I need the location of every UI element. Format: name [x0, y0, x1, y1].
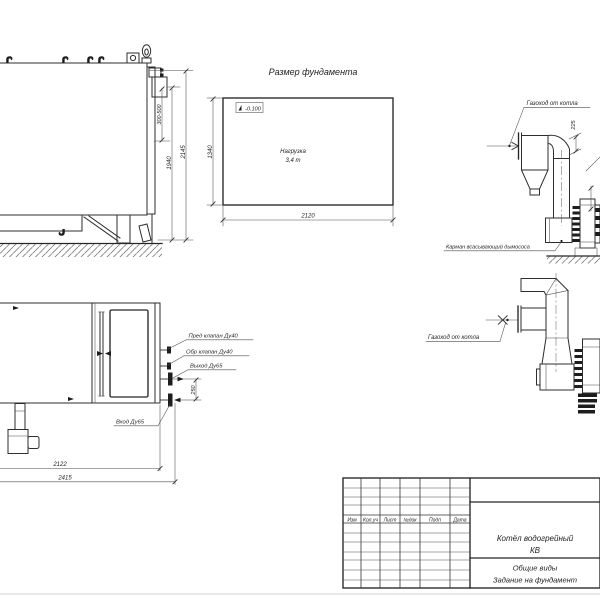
lifting-hook-icon [98, 56, 104, 63]
view-name-line1: Общие виды [513, 564, 558, 573]
cad-drawing-canvas: 300-500 1940 2145 Размер фундамента -0.1… [0, 0, 600, 600]
safety-valve-label: Пред клапан Ду40 [189, 334, 239, 340]
dim-foundation-width: 2120 [300, 214, 315, 220]
elevation-value: -0.100 [245, 106, 262, 112]
inlet-label: Вход Ду65 [116, 420, 145, 426]
dim-length-total: 2415 [57, 475, 72, 481]
suction-pocket-label: Карман всасывающий дымососа [446, 244, 530, 251]
access-door [110, 310, 148, 397]
boiler-plan-body [0, 303, 160, 403]
dim-nozzle-offset: 250 [191, 384, 197, 395]
dim-stack-range: 300-500 [157, 103, 163, 124]
dim-height-total: 2145 [181, 145, 187, 160]
col-izm: Изм [347, 518, 357, 524]
cyclone-body [522, 136, 549, 171]
check-valve-label: Обр клапан Ду40 [186, 350, 233, 356]
title-block: Изм Кол.уч Лист №док Подп Дата Котёл вод… [343, 478, 600, 588]
col-list: Лист [383, 518, 397, 524]
outlet-flange [168, 373, 173, 386]
col-koluch: Кол.уч [363, 518, 378, 524]
inlet-flange [168, 394, 173, 407]
foundation-plan: Размер фундамента -0.100 Нагрузка 3,4 т … [207, 67, 395, 226]
foundation-title: Размер фундамента [269, 67, 358, 77]
doc-name-line1: Котёл водогрейный [497, 534, 574, 543]
foundation-outline [223, 98, 393, 205]
col-data: Дата [452, 518, 466, 524]
col-ndok: №док [403, 518, 417, 524]
lifting-hook-icon [6, 56, 12, 63]
boiler-body [0, 63, 147, 215]
lifting-hook-icon [87, 56, 93, 63]
smoke-exhauster-fan-side [575, 339, 600, 414]
col-podp: Подп [429, 518, 441, 524]
load-label: Нагрузка [280, 149, 306, 155]
outlet-label: Выход Ду65 [190, 364, 223, 370]
flue-duct-top-view: Газоход от котла 225 [444, 101, 600, 264]
ground-hatch [0, 244, 162, 257]
flue-duct-label: Газоход от котла [527, 101, 579, 107]
flue-outlet-stub [152, 77, 167, 97]
inlet-duct [521, 308, 546, 330]
burner-attachment [8, 404, 39, 454]
boiler-side-view: 300-500 1940 2145 [0, 45, 193, 257]
doc-name-line2: КВ [530, 546, 541, 555]
smoke-exhauster-fan [573, 199, 600, 256]
dim-height-flange: 1940 [167, 156, 173, 170]
dim-duct-offset: 225 [571, 119, 577, 130]
flue-duct-side-view: Газоход от котла [426, 273, 600, 414]
cyclone-cone [522, 170, 549, 189]
lifting-hook-icon [62, 56, 68, 63]
view-name-line2: Задание на фундамент [493, 576, 577, 585]
dim-foundation-depth: 1340 [208, 145, 214, 159]
load-value: 3,4 т [285, 158, 300, 164]
boiler-plan-view: 250 Пред клапан Ду40 Обр клапан Ду40 Вых… [0, 303, 253, 485]
dim-length-body: 2122 [52, 462, 67, 468]
flue-duct-label: Газоход от котла [428, 335, 480, 341]
